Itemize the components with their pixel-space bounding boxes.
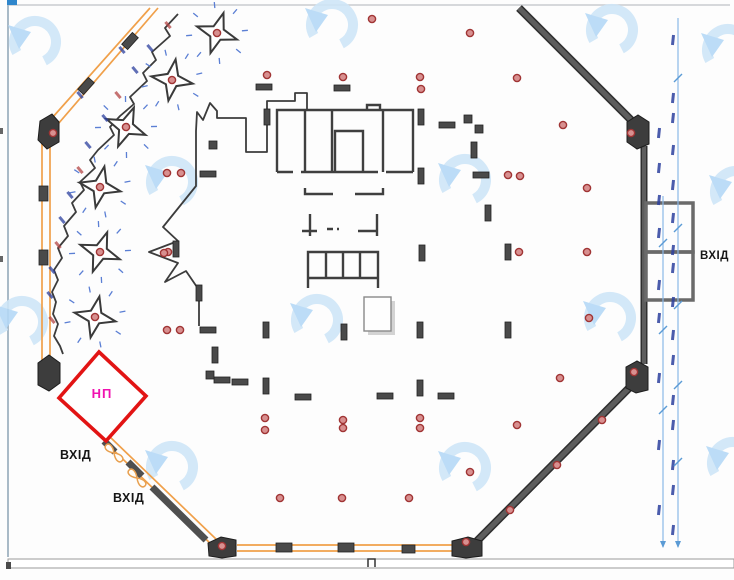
sprinkler-dot: [263, 71, 270, 78]
sprinkler-dot: [261, 414, 268, 421]
sprinkler-dot: [339, 424, 346, 431]
dimension-text-mark: [671, 420, 675, 430]
dimension-text-mark: [657, 280, 661, 290]
entrance-label-lower: ВХІД: [113, 491, 144, 505]
column: [377, 393, 393, 399]
column: [439, 122, 455, 128]
right-vestibule: [646, 203, 693, 300]
kiosk-star: [65, 287, 126, 348]
dimension-text-mark: [657, 228, 661, 238]
dimension-text-mark: [671, 485, 675, 495]
kiosk-star: [69, 221, 131, 283]
wall-bottom: [237, 543, 452, 553]
dimension-text-mark: [671, 330, 675, 340]
sprinkler-dot: [559, 121, 566, 128]
column: [485, 205, 491, 221]
column: [473, 172, 489, 178]
sprinkler-dot: [405, 494, 412, 501]
dimension-text-mark: [671, 213, 675, 223]
sprinkler-dot: [417, 85, 424, 92]
dimension-text-mark: [671, 263, 675, 273]
sprinkler-dot: [553, 461, 560, 468]
sprinkler-dot: [598, 416, 605, 423]
kiosk-star: [95, 96, 157, 158]
column: [263, 378, 269, 394]
sprinkler-dot: [339, 416, 346, 423]
wall-top-left-diagonal: [44, 8, 158, 131]
scrollbar-end-mark: [6, 562, 11, 569]
dimension-text-mark: [671, 355, 675, 365]
dimension-text-mark: [657, 163, 661, 173]
sprinkler-dot: [276, 494, 283, 501]
column: [173, 241, 179, 257]
sprinkler-dot: [506, 506, 513, 513]
dimension-text-mark: [657, 128, 661, 138]
sprinkler-dot: [466, 468, 473, 475]
dimension-text-mark: [671, 93, 675, 103]
column: [263, 322, 269, 338]
sprinkler-dot: [163, 169, 170, 176]
sprinkler-dot: [339, 73, 346, 80]
kiosk-star: [70, 157, 131, 218]
column: [505, 322, 511, 338]
dimension-text-mark: [657, 373, 661, 383]
sprinkler-dot: [462, 538, 469, 545]
column: [295, 394, 311, 400]
bottom-scrollbar[interactable]: [6, 559, 734, 569]
column: [256, 84, 272, 90]
dimension-text-mark: [657, 313, 661, 323]
dimension-text-mark: [671, 113, 675, 123]
elevator-bank: [308, 252, 378, 288]
sprinkler-dot: [416, 73, 423, 80]
column: [200, 171, 216, 177]
paper-sheet: [364, 297, 391, 331]
sprinkler-dot: [504, 171, 511, 178]
sprinkler-dot: [416, 414, 423, 421]
sprinkler-dot: [49, 129, 56, 136]
sprinkler-dot: [218, 542, 225, 549]
column: [341, 324, 347, 340]
column: [264, 109, 270, 125]
entrance-label-right: ВХІД: [700, 250, 729, 262]
plan-viewport: НП ВХІД ВХІД ВХІД: [0, 0, 734, 580]
dimension-text-mark: [671, 180, 675, 190]
column: [212, 347, 218, 363]
sprinkler-dot: [556, 374, 563, 381]
column: [464, 115, 472, 123]
column: [209, 141, 217, 149]
sprinkler-dot: [466, 29, 473, 36]
column: [418, 168, 424, 184]
central-core: [277, 105, 413, 335]
dimension-text-mark: [671, 145, 675, 155]
column: [334, 85, 350, 91]
sprinkler-dot: [627, 129, 634, 136]
selection-corner-handle: [7, 0, 17, 5]
sprinkler-dot: [261, 426, 268, 433]
kiosk-star: [142, 50, 202, 110]
dimension-strip: [657, 18, 682, 548]
wall-top-right-diagonal: [519, 8, 631, 120]
sprinkler-dot: [160, 249, 167, 256]
dimension-text-mark: [671, 395, 675, 405]
sprinkler-dot: [163, 326, 170, 333]
sprinkler-dot: [516, 172, 523, 179]
sprinkler-dot: [416, 424, 423, 431]
sprinkler-dot: [583, 184, 590, 191]
sprinkler-dot: [513, 421, 520, 428]
sprinkler-dot: [585, 314, 592, 321]
column: [505, 244, 511, 260]
column: [417, 380, 423, 396]
sprinkler-dot: [630, 368, 637, 375]
column: [196, 285, 202, 301]
column: [475, 125, 483, 133]
corner-block: [38, 355, 60, 391]
sprinkler-dot: [583, 248, 590, 255]
sprinkler-dot: [513, 74, 520, 81]
sprinkler-dot: [176, 326, 183, 333]
floor-plan-canvas: [0, 0, 734, 580]
np-zone-label: НП: [80, 386, 124, 401]
corner-block: [626, 361, 648, 393]
kiosk-star: [186, 2, 248, 64]
column: [438, 393, 454, 399]
dimension-text-mark: [671, 35, 675, 45]
column: [200, 327, 216, 333]
sprinkler-dot: [515, 248, 522, 255]
column: [214, 377, 230, 383]
sprinkler-dot: [338, 494, 345, 501]
column: [417, 322, 423, 338]
dimension-text-mark: [657, 505, 661, 515]
column: [232, 379, 248, 385]
entrance-label-upper: ВХІД: [60, 448, 91, 462]
interior-boundary-wall: [149, 93, 307, 326]
column: [418, 109, 424, 125]
dimension-text-mark: [657, 440, 661, 450]
column: [206, 371, 214, 379]
column: [419, 245, 425, 261]
sprinkler-dot: [368, 15, 375, 22]
dimension-text-mark: [671, 525, 675, 535]
column: [471, 142, 477, 158]
annotation-specks-layer: [0, 21, 172, 324]
sprinkler-dot: [177, 169, 184, 176]
